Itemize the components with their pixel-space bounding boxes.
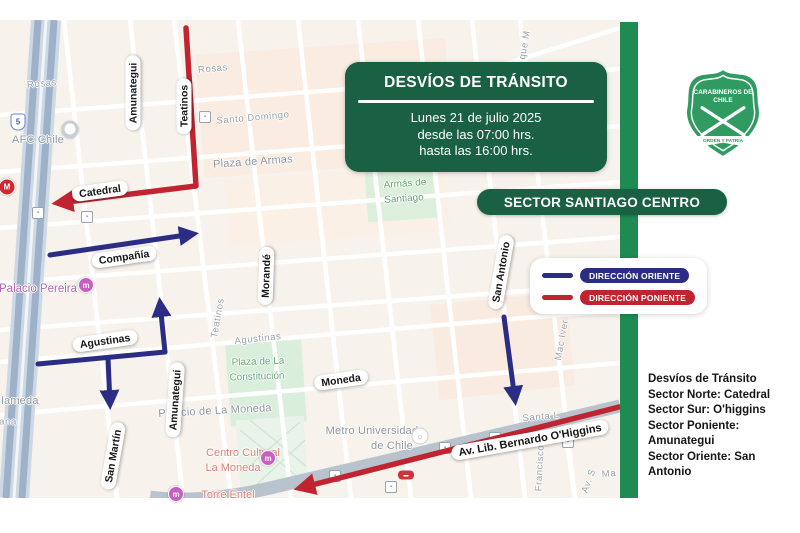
- detour-list: Desvíos de Tránsito Sector Norte: Catedr…: [648, 372, 800, 481]
- metro-line-icon: m: [78, 277, 94, 293]
- map-label: Palacio Pereira: [0, 283, 77, 295]
- transit-stop-icon: ▪: [81, 211, 93, 223]
- detour-list-item: Sector Oriente: San Antonio: [648, 450, 800, 481]
- sector-banner: SECTOR SANTIAGO CENTRO: [477, 189, 727, 215]
- map-label: Plaza de La: [231, 356, 284, 369]
- map-label: lameda: [1, 395, 38, 407]
- transit-stop-icon: ▪: [329, 470, 341, 482]
- metro-universidad-icon: ○: [412, 428, 429, 445]
- street-label-pill: Teatinos: [177, 78, 192, 134]
- street-label-pill: Amunategui: [126, 56, 141, 131]
- detour-list-item: Sector Poniente: Amunategui: [648, 419, 800, 450]
- metro-line-icon: m: [260, 450, 276, 466]
- map-label: Metro Universidad: [326, 425, 419, 437]
- legend-card: DIRECCIÓN ORIENTE DIRECCIÓN PONIENTE: [530, 258, 707, 314]
- date-line-1: Lunes 21 de julio 2025: [345, 110, 607, 127]
- map-label: de Chile: [371, 440, 413, 452]
- legend-poniente-pill: DIRECCIÓN PONIENTE: [580, 290, 695, 305]
- legend-oriente-pill: DIRECCIÓN ORIENTE: [580, 268, 689, 283]
- logo-org-line2: CHILE: [713, 97, 733, 104]
- badge-icon: CARABINEROS DE CHILE ORDEN Y PATRIA: [681, 66, 765, 160]
- rail-stop-icon: ▬: [398, 471, 414, 480]
- detour-list-item: Sector Sur: O'higgins: [648, 403, 800, 419]
- route-5-shield-icon: 5: [11, 114, 26, 131]
- map-label: La Moneda: [205, 462, 260, 474]
- flyer: AmunateguiTeatinosCatedralCompañíaMorand…: [0, 0, 800, 533]
- detour-list-title: Desvíos de Tránsito: [648, 372, 800, 388]
- map-label: Torre Entel: [201, 489, 254, 501]
- map-label: Ma: [601, 468, 616, 480]
- transit-stop-icon: ▪: [32, 207, 44, 219]
- date-line-3: hasta las 16:00 hrs.: [345, 143, 607, 160]
- title-divider: [358, 100, 594, 103]
- map-label: AFC Chile: [12, 134, 64, 146]
- logo-org-line1: CARABINEROS DE: [694, 89, 754, 96]
- poi-pin-icon: [62, 121, 79, 138]
- detour-list-item: Sector Norte: Catedral: [648, 388, 800, 404]
- transit-stop-icon: ▪: [385, 481, 397, 493]
- carabineros-logo: CARABINEROS DE CHILE ORDEN Y PATRIA: [681, 66, 765, 165]
- street-label-pill: Morandé: [257, 247, 274, 305]
- blue-line-swatch: [542, 273, 573, 278]
- map-label: ana: [0, 417, 17, 428]
- date-line-2: desde las 07:00 hrs.: [345, 127, 607, 144]
- title-box: DESVÍOS DE TRÁNSITO Lunes 21 de julio 20…: [345, 62, 607, 172]
- logo-motto: ORDEN Y PATRIA: [703, 138, 744, 144]
- legend-row-poniente: DIRECCIÓN PONIENTE: [542, 290, 707, 305]
- page-title: DESVÍOS DE TRÁNSITO: [345, 74, 607, 92]
- transit-stop-icon: ▪: [439, 442, 451, 454]
- red-line-swatch: [542, 295, 573, 300]
- transit-stop-icon: ▪: [199, 111, 211, 123]
- map-label: Constitución: [229, 371, 284, 384]
- metro-line-icon: m: [168, 486, 184, 502]
- legend-row-oriente: DIRECCIÓN ORIENTE: [542, 268, 707, 283]
